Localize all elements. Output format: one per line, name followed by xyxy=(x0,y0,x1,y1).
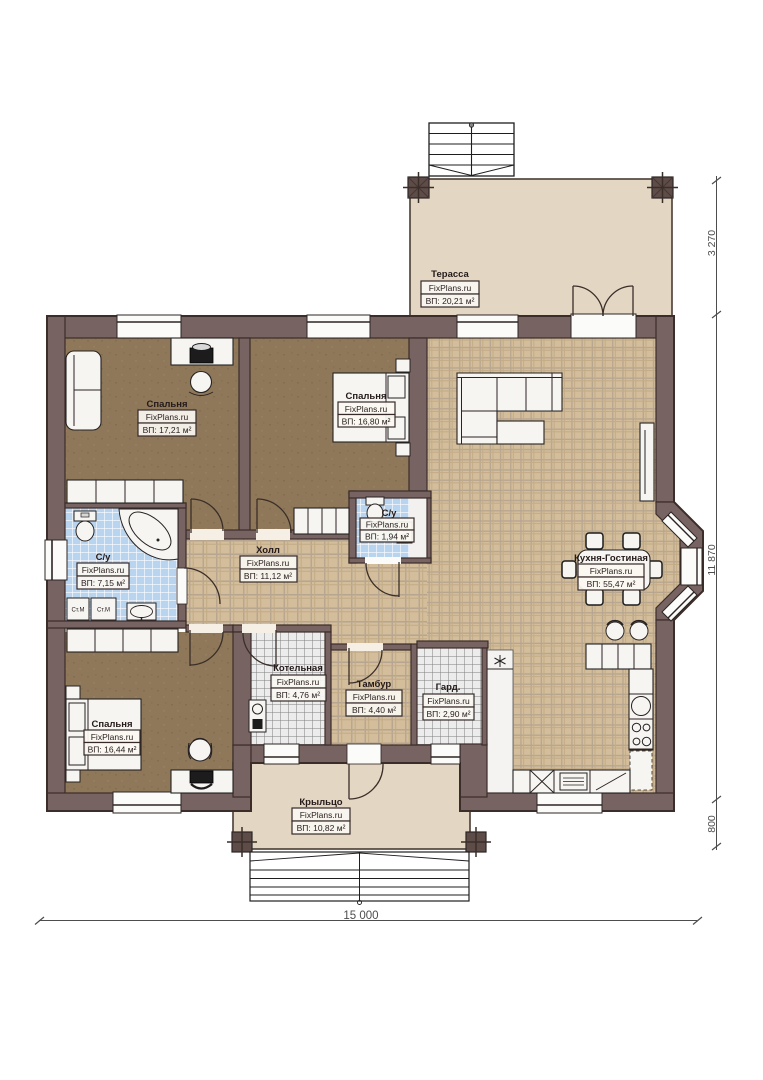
svg-text:FixPlans.ru: FixPlans.ru xyxy=(590,566,633,576)
svg-text:Крыльцо: Крыльцо xyxy=(299,797,342,808)
svg-text:Гард.: Гард. xyxy=(436,682,461,693)
svg-text:Терасса: Терасса xyxy=(431,269,469,280)
svg-text:ВП: 10,82 м²: ВП: 10,82 м² xyxy=(297,823,346,833)
svg-text:ВП: 17,21 м²: ВП: 17,21 м² xyxy=(143,425,192,435)
svg-text:FixPlans.ru: FixPlans.ru xyxy=(82,565,125,575)
svg-text:15 000: 15 000 xyxy=(343,910,378,922)
svg-text:FixPlans.ru: FixPlans.ru xyxy=(247,558,290,568)
svg-text:Тамбур: Тамбур xyxy=(357,679,392,690)
svg-text:FixPlans.ru: FixPlans.ru xyxy=(427,696,470,706)
svg-text:ВП: 16,80 м²: ВП: 16,80 м² xyxy=(342,417,391,427)
svg-text:ВП: 4,76 м²: ВП: 4,76 м² xyxy=(276,690,320,700)
svg-text:FixPlans.ru: FixPlans.ru xyxy=(345,404,388,414)
svg-text:FixPlans.ru: FixPlans.ru xyxy=(146,412,189,422)
svg-text:Холл: Холл xyxy=(256,545,280,556)
svg-text:ВП: 7,15 м²: ВП: 7,15 м² xyxy=(81,578,125,588)
svg-text:Ст.М: Ст.М xyxy=(97,608,110,614)
svg-text:Спальня: Спальня xyxy=(146,399,187,410)
svg-text:Ст.М: Ст.М xyxy=(71,608,84,614)
svg-text:С/у: С/у xyxy=(382,508,398,519)
svg-text:FixPlans.ru: FixPlans.ru xyxy=(91,732,134,742)
svg-text:11 870: 11 870 xyxy=(706,544,718,575)
svg-text:ВП: 55,47 м²: ВП: 55,47 м² xyxy=(587,579,636,589)
svg-text:ВП: 16,44 м²: ВП: 16,44 м² xyxy=(88,745,137,755)
svg-text:Спальня: Спальня xyxy=(345,391,386,402)
svg-text:ВП: 1,94 м²: ВП: 1,94 м² xyxy=(365,532,409,542)
svg-text:FixPlans.ru: FixPlans.ru xyxy=(277,677,320,687)
svg-text:3 270: 3 270 xyxy=(706,230,718,256)
svg-text:800: 800 xyxy=(706,815,718,833)
svg-text:ВП: 20,21 м²: ВП: 20,21 м² xyxy=(426,296,475,306)
svg-text:С/у: С/у xyxy=(96,552,112,563)
svg-text:Спальня: Спальня xyxy=(91,719,132,730)
svg-text:FixPlans.ru: FixPlans.ru xyxy=(429,283,472,293)
svg-text:FixPlans.ru: FixPlans.ru xyxy=(366,520,409,530)
svg-text:Кухня-Гостиная: Кухня-Гостиная xyxy=(574,553,648,564)
svg-text:Котельная: Котельная xyxy=(273,663,323,674)
svg-text:FixPlans.ru: FixPlans.ru xyxy=(353,692,396,702)
svg-text:ВП: 11,12 м²: ВП: 11,12 м² xyxy=(244,571,292,581)
svg-text:FixPlans.ru: FixPlans.ru xyxy=(300,810,343,820)
svg-text:ВП: 4,40 м²: ВП: 4,40 м² xyxy=(352,705,396,715)
svg-text:ВП: 2,90 м²: ВП: 2,90 м² xyxy=(426,709,470,719)
